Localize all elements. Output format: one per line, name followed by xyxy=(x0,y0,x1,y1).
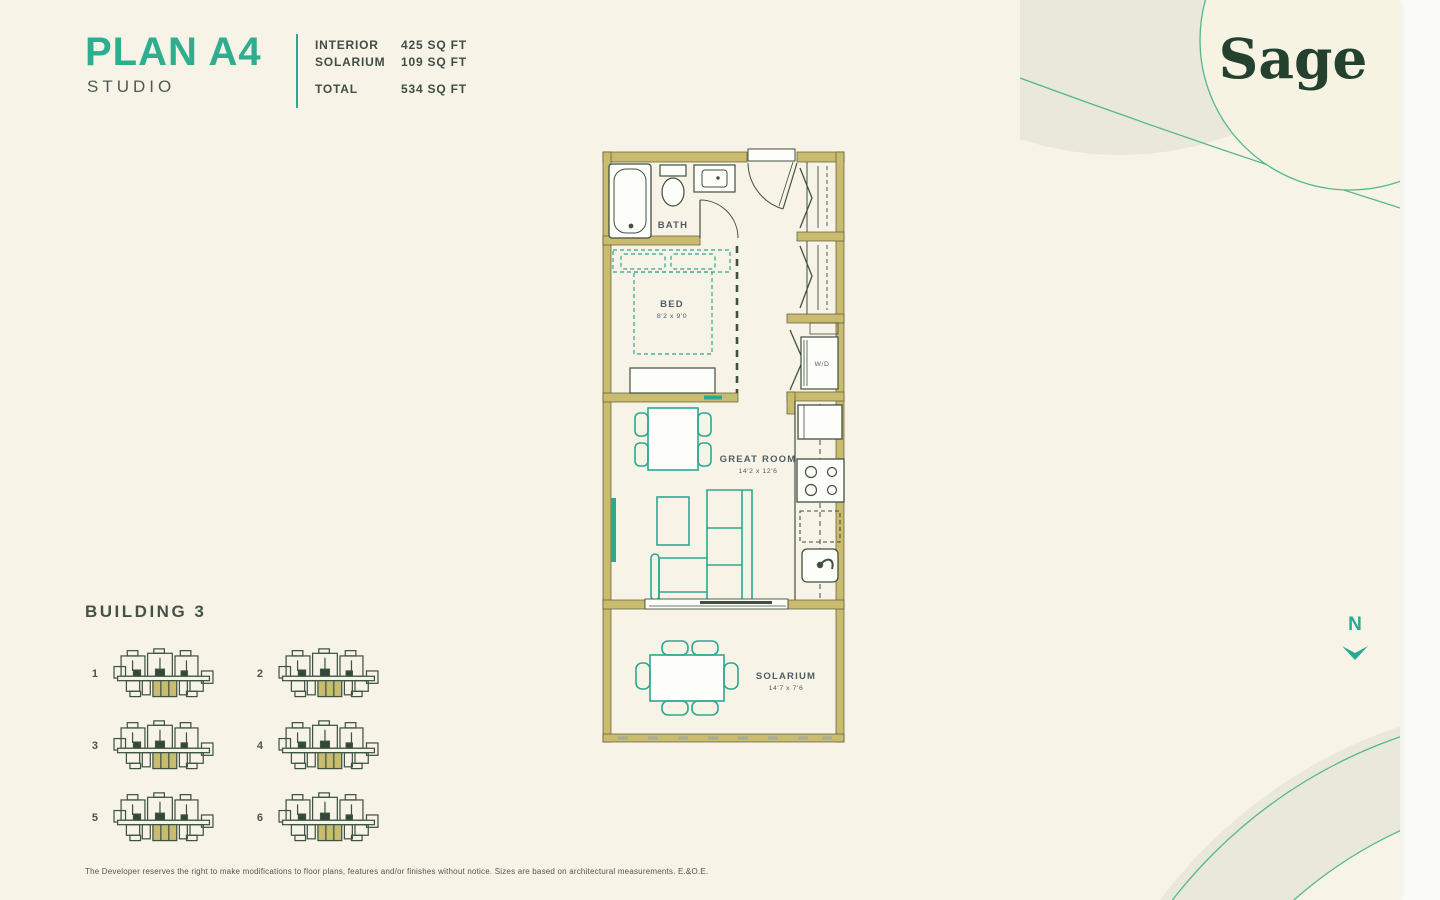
plan-type-label: STUDIO xyxy=(87,77,175,97)
building-keyplan-5 xyxy=(112,792,215,845)
keyplan-number-3: 3 xyxy=(84,740,98,752)
washer-dryer-label: W/D xyxy=(814,361,829,368)
building-keyplan-4 xyxy=(277,720,380,773)
solarium-label: SOLARIUM xyxy=(756,671,816,682)
building-key-title: BUILDING 3 xyxy=(85,602,206,622)
dresser xyxy=(630,368,715,393)
walls xyxy=(603,152,844,742)
keyplan-number-2: 2 xyxy=(249,668,263,680)
stat-value: 109 SQ FT xyxy=(401,55,467,69)
page-title: PLAN A4 xyxy=(85,30,262,75)
entry-door xyxy=(748,149,797,209)
keyplan-number-5: 5 xyxy=(84,812,98,824)
sofa-set xyxy=(651,490,752,600)
brand-logo: Sage xyxy=(1218,26,1368,91)
stat-total: TOTAL 534 SQ FT xyxy=(315,82,467,96)
solarium-slider xyxy=(645,599,788,609)
building-keyplan-3 xyxy=(112,720,215,773)
kitchen xyxy=(795,401,844,600)
decor-circles-bottom-right xyxy=(1080,680,1400,900)
stat-label: INTERIOR xyxy=(315,38,401,52)
stat-interior: INTERIOR 425 SQ FT xyxy=(315,38,467,52)
solarium-dims: 14'7 x 7'6 xyxy=(769,685,804,692)
disclaimer-text: The Developer reserves the right to make… xyxy=(85,867,708,876)
stat-solarium: SOLARIUM 109 SQ FT xyxy=(315,55,467,69)
header-divider xyxy=(296,34,298,108)
keyplan-number-6: 6 xyxy=(249,812,263,824)
bath-label: BATH xyxy=(658,220,688,231)
bed-dims: 8'2 x 9'0 xyxy=(657,313,687,320)
floor-plan: W/D BATH BED 8'2 x 9'0 xyxy=(600,144,852,748)
stat-label: TOTAL xyxy=(315,82,401,96)
washer-dryer: W/D xyxy=(801,337,838,389)
bed-label: BED xyxy=(660,299,684,310)
great-room-dims: 14'2 x 12'6 xyxy=(738,468,777,475)
north-label: N xyxy=(1335,614,1375,636)
solarium-table-set xyxy=(636,641,738,715)
stat-value: 534 SQ FT xyxy=(401,82,467,96)
tv-unit xyxy=(611,498,616,562)
building-keyplan-2 xyxy=(277,648,380,701)
keyplan-number-4: 4 xyxy=(249,740,263,752)
brochure-page: PLAN A4 STUDIO INTERIOR 425 SQ FT SOLARI… xyxy=(0,0,1400,900)
keyplan-number-1: 1 xyxy=(84,668,98,680)
building-keyplan-6 xyxy=(277,792,380,845)
building-keyplan-1 xyxy=(112,648,215,701)
great-room-label: GREAT ROOM xyxy=(720,454,797,465)
dining-set xyxy=(635,408,711,470)
stat-value: 425 SQ FT xyxy=(401,38,467,52)
bath-door xyxy=(700,200,738,238)
stat-label: SOLARIUM xyxy=(315,55,401,69)
north-arrow-icon xyxy=(1335,640,1375,670)
